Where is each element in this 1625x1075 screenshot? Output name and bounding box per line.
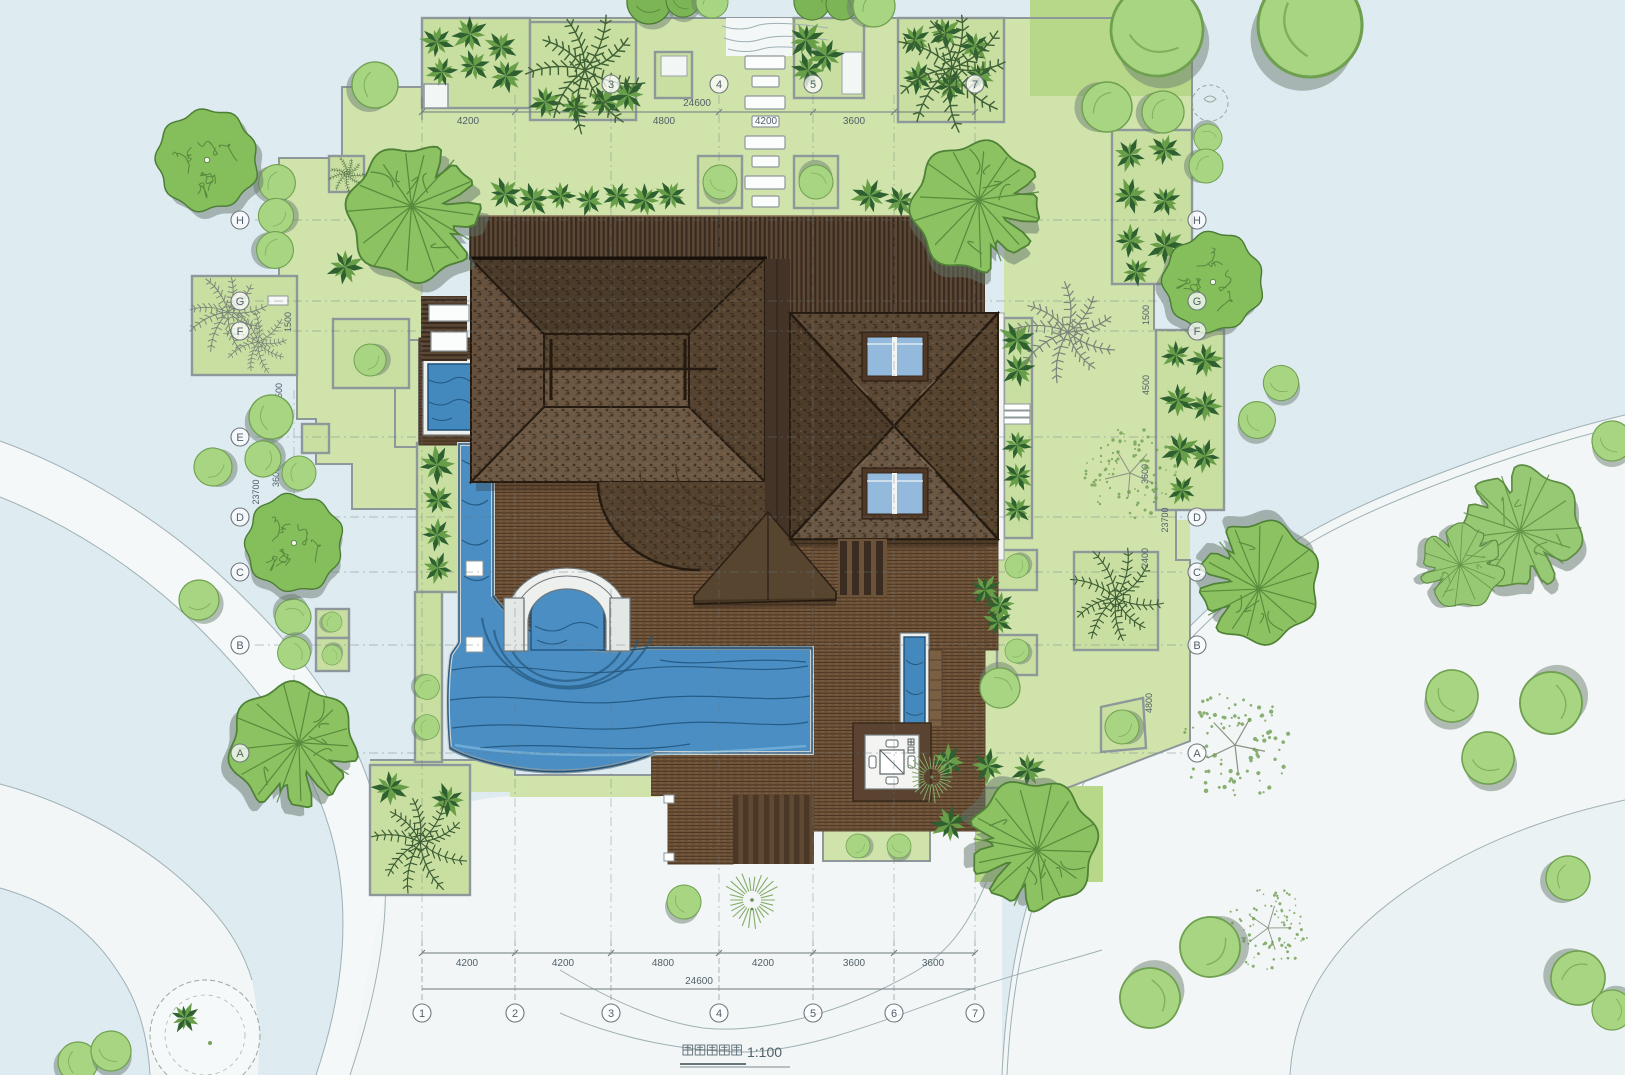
svg-text:H: H	[1193, 215, 1201, 227]
svg-text:4800: 4800	[652, 958, 675, 969]
svg-text:5: 5	[810, 79, 816, 91]
svg-text:3600: 3600	[843, 958, 866, 969]
svg-text:4200: 4200	[456, 958, 479, 969]
svg-text:24600: 24600	[685, 976, 713, 987]
svg-text:D: D	[1193, 512, 1201, 524]
svg-text:4: 4	[716, 79, 722, 91]
svg-text:23700: 23700	[1160, 507, 1170, 532]
svg-text:4200: 4200	[755, 116, 778, 127]
svg-text:F: F	[1194, 326, 1201, 338]
svg-text:B: B	[1193, 640, 1200, 652]
svg-text:3600: 3600	[922, 958, 945, 969]
svg-text:6: 6	[891, 1008, 897, 1020]
svg-text:24600: 24600	[683, 98, 711, 109]
svg-text:A: A	[1193, 748, 1201, 760]
svg-text:G: G	[236, 296, 245, 308]
svg-text:1: 1	[419, 1008, 425, 1020]
svg-text:2: 2	[512, 1008, 518, 1020]
svg-text:B: B	[236, 640, 243, 652]
svg-text:5: 5	[810, 1008, 816, 1020]
svg-text:7: 7	[972, 79, 978, 91]
svg-text:4800: 4800	[653, 116, 676, 127]
svg-text:2400: 2400	[1140, 548, 1150, 568]
svg-text:G: G	[1193, 296, 1202, 308]
svg-text:4200: 4200	[552, 958, 575, 969]
svg-text:1500: 1500	[283, 312, 293, 332]
svg-text:7: 7	[972, 1008, 978, 1020]
svg-text:1:100: 1:100	[747, 1044, 782, 1060]
svg-text:A: A	[236, 748, 244, 760]
svg-text:H: H	[236, 215, 244, 227]
svg-text:23700: 23700	[251, 479, 261, 504]
svg-text:3: 3	[608, 79, 614, 91]
svg-text:3: 3	[608, 1008, 614, 1020]
svg-text:3600: 3600	[843, 116, 866, 127]
svg-text:C: C	[236, 567, 244, 579]
svg-text:4200: 4200	[457, 116, 480, 127]
svg-text:E: E	[236, 432, 243, 444]
svg-text:1500: 1500	[1141, 305, 1151, 325]
svg-text:4: 4	[716, 1008, 722, 1020]
svg-text:D: D	[236, 512, 244, 524]
svg-text:4200: 4200	[752, 958, 775, 969]
svg-text:4500: 4500	[1141, 375, 1151, 395]
svg-text:C: C	[1193, 567, 1201, 579]
svg-text:F: F	[237, 326, 244, 338]
svg-text:4800: 4800	[1144, 693, 1154, 713]
